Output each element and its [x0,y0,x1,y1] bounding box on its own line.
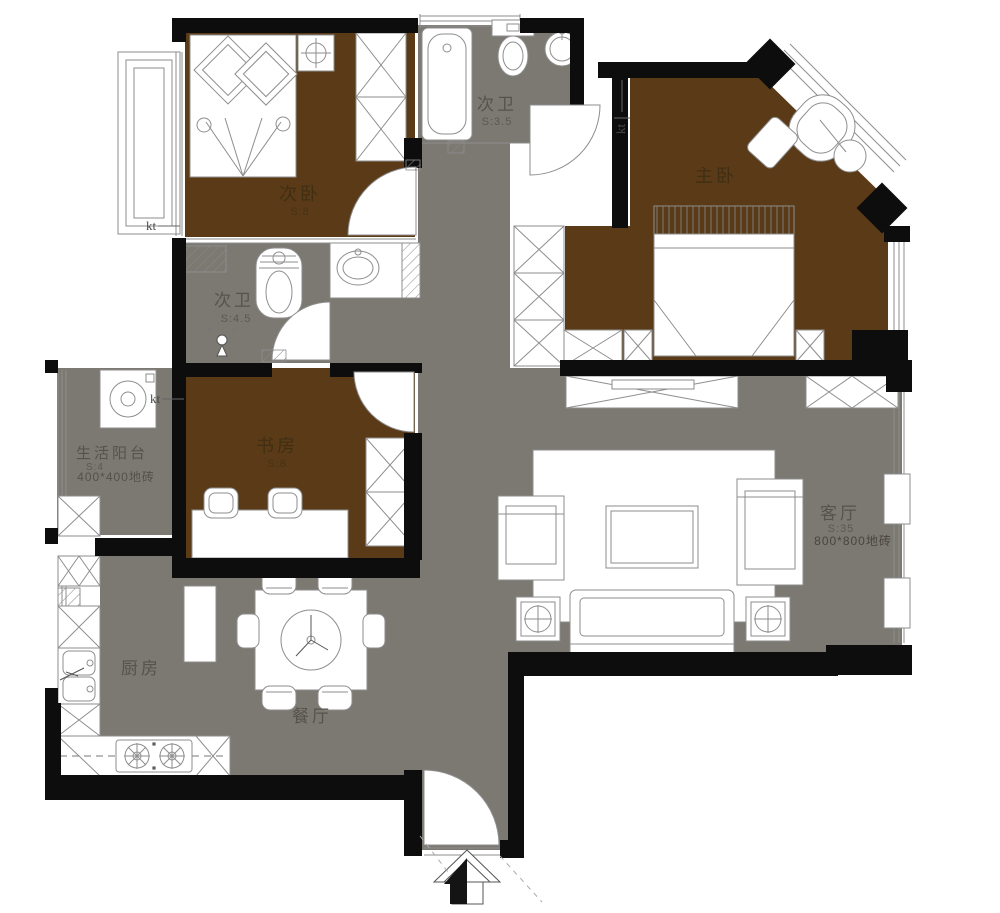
room-label-dining-room: 餐厅 [292,707,332,726]
floor-note-service-balcony: 400*400地砖 [77,469,155,484]
kt-label-upper: kt [146,218,157,233]
room-label-master-bedroom: 主卧 [695,166,737,186]
floor-plan-canvas: 次卧 S:8 次卫 S:3.5 主卧 次卫 S:4.5 生活阳台 S:4 400… [0,0,1000,913]
door-master-bedroom [530,105,600,175]
room-label-lower-bathroom: 次卫 [214,291,254,310]
squat-toilet [256,248,302,318]
kitchen-sink [58,648,100,704]
room-label-kitchen: 厨房 [121,659,161,678]
side-table-round [834,140,866,172]
room-area-study: S:8 [267,458,287,470]
side-table-right [746,597,790,641]
kt-label-lower: kt [150,391,161,406]
bathtub [422,28,472,140]
washing-machine [100,370,156,428]
shower-tray [184,246,226,272]
dining-chair [237,614,259,648]
room-area-secondary-bedroom: S:8 [290,206,310,218]
room-label-service-balcony: 生活阳台 [76,445,148,462]
top-right-cabinet [806,376,898,408]
dining-chair [363,614,385,648]
armchair-right [737,479,803,585]
master-bed [654,234,794,356]
armchair-left [498,496,564,580]
floor-note-living-room: 800*800地砖 [814,533,892,548]
coffee-table [606,506,698,568]
dining-chair [262,686,296,710]
stove [116,740,192,772]
sofa [570,590,734,660]
tall-cabinet [402,243,420,298]
wardrobe [356,33,406,161]
room-label-secondary-bedroom: 次卧 [279,184,321,204]
refrigerator [184,586,216,662]
room-label-living-room: 客厅 [820,504,860,523]
side-table-left [516,597,560,641]
room-label-study: 书房 [256,436,298,456]
dining-furniture [237,570,385,710]
room-area-upper-bathroom: S:3.5 [482,116,513,128]
kt-label-top: kt [613,124,628,135]
tv [612,380,694,389]
headboard [654,206,794,234]
room-area-lower-bathroom: S:4.5 [221,313,252,325]
room-label-upper-bathroom: 次卫 [477,95,517,114]
tv-cabinet [566,376,738,408]
floor-plan-drawing: 次卧 S:8 次卫 S:3.5 主卧 次卫 S:4.5 生活阳台 S:4 400… [0,0,1000,913]
